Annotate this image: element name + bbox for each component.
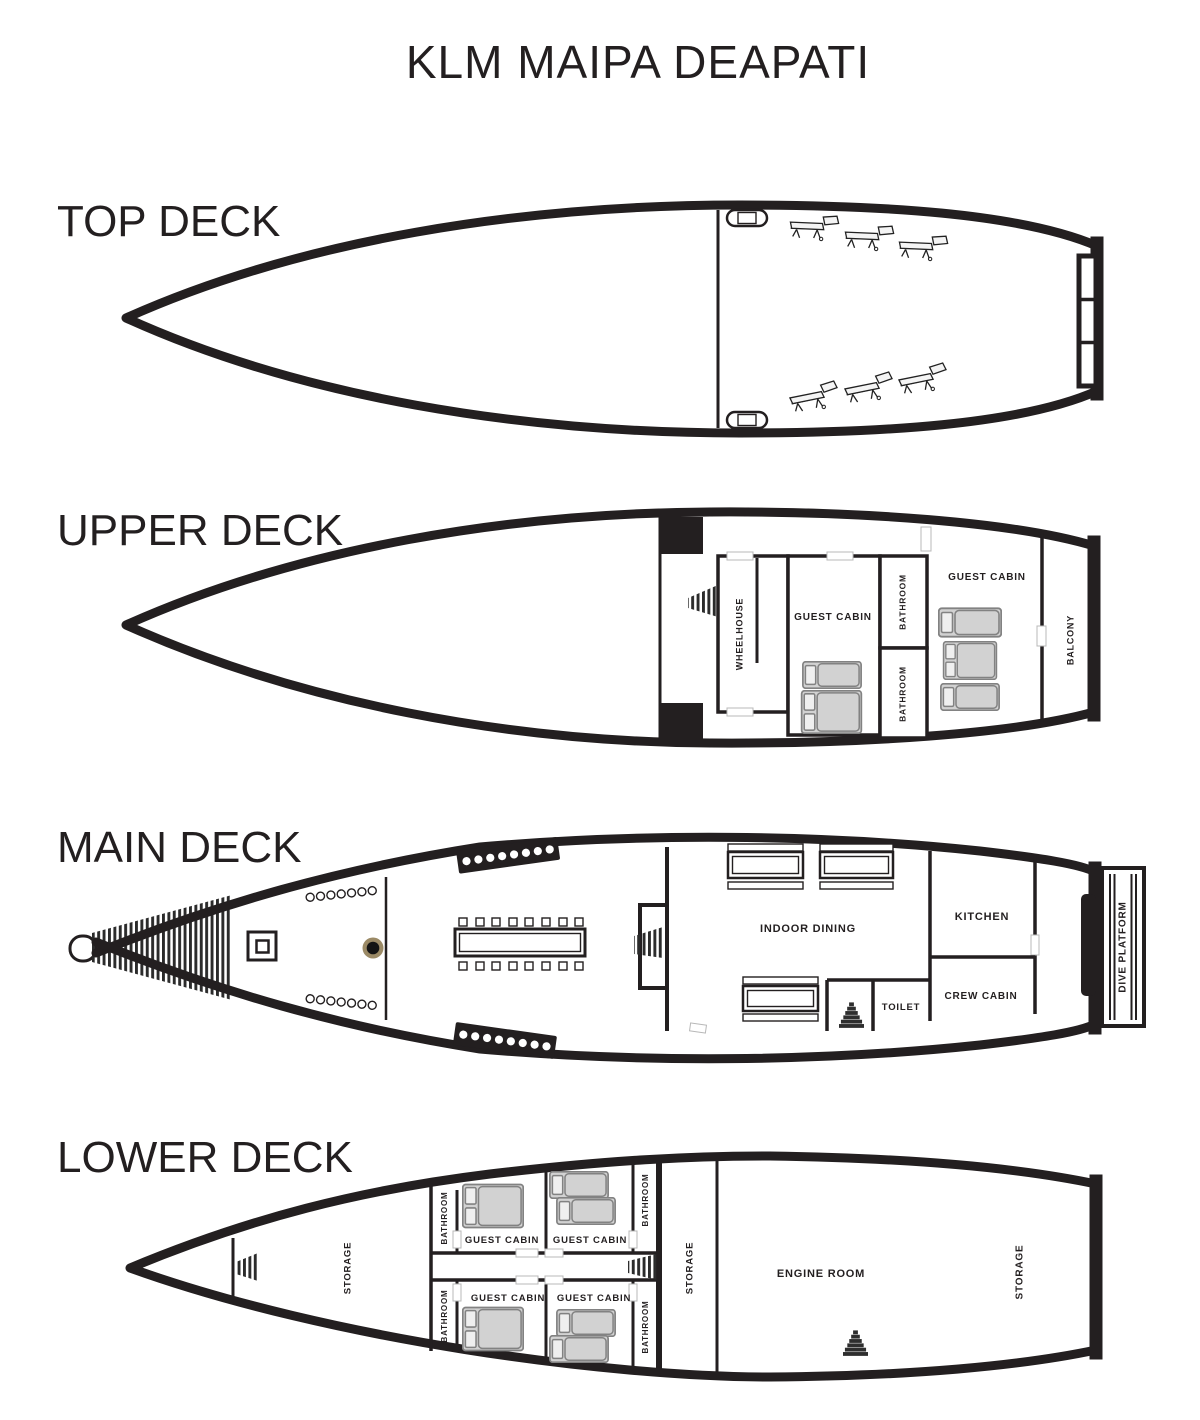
storage-label: STORAGE xyxy=(1015,1245,1026,1300)
toilet-label: TOILET xyxy=(882,1002,920,1013)
bathroom-label: BATHROOM xyxy=(897,574,907,630)
dining-table-set xyxy=(743,977,818,1021)
top-deck-title: TOP DECK xyxy=(57,197,280,246)
deck-plan-page: KLM MAIPA DEAPATI TOP DECK UPPER DECK xyxy=(0,0,1200,1420)
door-opening xyxy=(453,1231,461,1248)
guest-cabin-label: GUEST CABIN xyxy=(557,1293,631,1304)
door-opening xyxy=(453,1284,461,1301)
bed-icon xyxy=(944,642,997,680)
guest-cabin-label: GUEST CABIN xyxy=(465,1235,539,1246)
upper-deck-plan: UPPER DECK WHEELHOUSE GUEST CABIN BATHRO… xyxy=(57,506,1094,743)
dining-table-set xyxy=(820,844,893,889)
door-opening xyxy=(516,1249,538,1257)
bed-icon xyxy=(802,691,862,733)
porthole-icons xyxy=(306,886,377,901)
dining-table-set xyxy=(728,844,803,889)
lower-deck-hull xyxy=(130,1156,1096,1377)
main-deck-plan: MAIN DECK xyxy=(57,823,1144,1059)
balcony-label: BALCONY xyxy=(1065,615,1075,665)
bed-icon xyxy=(803,662,861,689)
stairs-icon xyxy=(839,1002,864,1027)
kitchen-label: KITCHEN xyxy=(955,911,1010,923)
outdoor-dining-table xyxy=(455,929,585,956)
door-opening xyxy=(629,1231,637,1248)
bed-icon xyxy=(941,684,999,711)
door-opening xyxy=(545,1249,563,1257)
door-opening xyxy=(1037,626,1046,646)
boat-title: KLM MAIPA DEAPATI xyxy=(406,36,870,88)
door-opening xyxy=(545,1276,563,1284)
bulkhead-block xyxy=(661,703,703,740)
storage-label: STORAGE xyxy=(343,1242,354,1294)
door-opening xyxy=(921,527,931,551)
wheelhouse-label: WHEELHOUSE xyxy=(734,598,744,671)
indoor-dining-label: INDOOR DINING xyxy=(760,923,856,935)
guest-cabin-label: GUEST CABIN xyxy=(794,612,872,623)
guest-cabin-label: GUEST CABIN xyxy=(553,1235,627,1246)
dive-platform-label: DIVE PLATFORM xyxy=(1118,901,1129,992)
wheelhouse-room xyxy=(718,556,788,712)
bathroom-label: BATHROOM xyxy=(440,1290,449,1343)
upper-deck-title: UPPER DECK xyxy=(57,506,343,555)
door-opening xyxy=(727,708,753,716)
engine-room-label: ENGINE ROOM xyxy=(777,1268,865,1280)
bathroom-label: BATHROOM xyxy=(897,666,907,722)
lower-deck-title: LOWER DECK xyxy=(57,1133,353,1182)
guest-cabin-label: GUEST CABIN xyxy=(948,572,1026,583)
bathroom-label: BATHROOM xyxy=(440,1192,449,1245)
bed-icon xyxy=(557,1198,615,1225)
porthole-icons xyxy=(306,994,377,1009)
mast-icon xyxy=(363,938,384,959)
bathroom-label: BATHROOM xyxy=(641,1174,650,1227)
bed-icon xyxy=(557,1310,615,1337)
guest-cabin-label: GUEST CABIN xyxy=(471,1293,545,1304)
bulkhead-block xyxy=(661,517,703,554)
deck-plan-diagram: KLM MAIPA DEAPATI TOP DECK UPPER DECK xyxy=(0,0,1200,1420)
deck-hatch-icon xyxy=(248,932,276,960)
lower-deck-plan: LOWER DECK STORAGE BATHROOM BATHROOM GUE… xyxy=(57,1133,1096,1378)
door-opening xyxy=(827,552,853,560)
stern-gate xyxy=(1081,894,1096,996)
door-opening xyxy=(1031,935,1039,955)
storage-label: STORAGE xyxy=(685,1242,696,1294)
door-opening xyxy=(690,1023,707,1033)
bed-icon xyxy=(550,1336,608,1363)
door-opening xyxy=(727,552,753,560)
bed-icon xyxy=(939,608,1001,636)
top-deck-plan: TOP DECK xyxy=(57,197,1097,433)
crew-cabin-label: CREW CABIN xyxy=(945,991,1018,1002)
bed-icon xyxy=(550,1172,608,1199)
stern-ladder-icon xyxy=(1079,256,1096,386)
door-opening xyxy=(516,1276,538,1284)
bed-icon xyxy=(463,1307,523,1350)
bathroom-label: BATHROOM xyxy=(641,1301,650,1354)
bed-icon xyxy=(463,1184,523,1227)
main-deck-title: MAIN DECK xyxy=(57,823,301,872)
